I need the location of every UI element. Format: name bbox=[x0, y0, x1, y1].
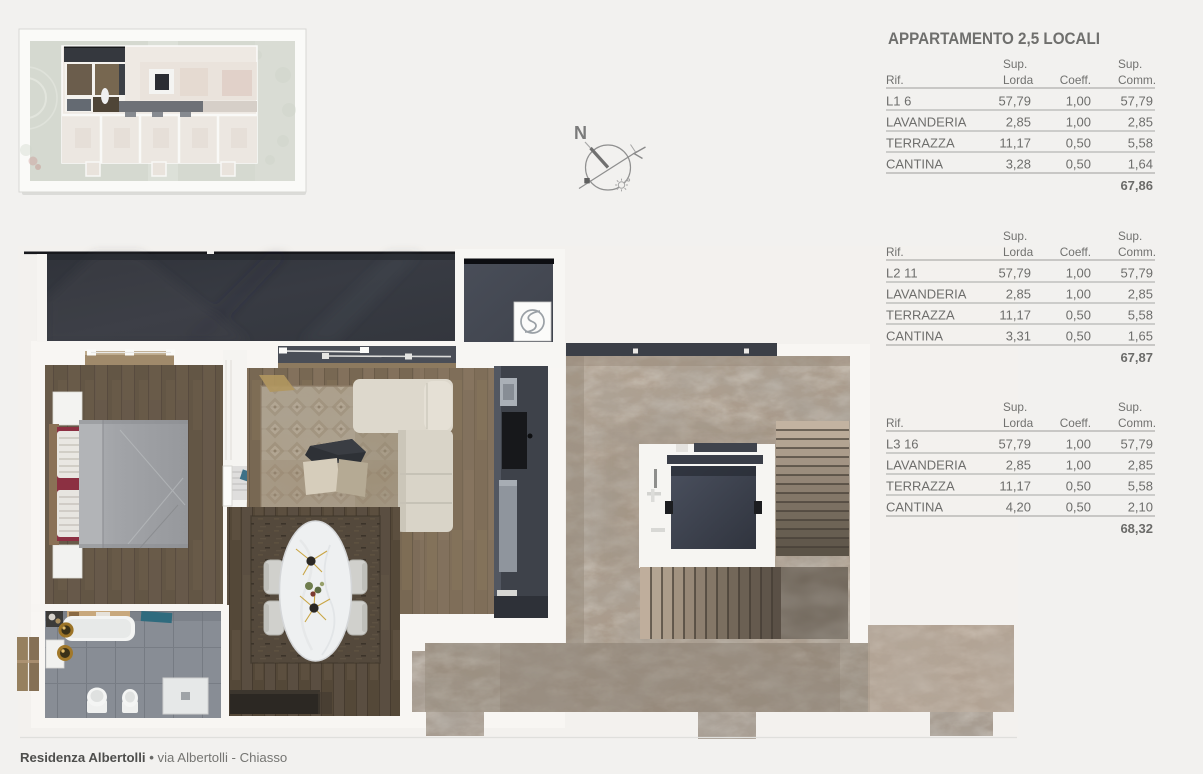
svg-text:1,00: 1,00 bbox=[1066, 287, 1091, 302]
svg-text:L3 16: L3 16 bbox=[886, 437, 919, 452]
svg-text:57,79: 57,79 bbox=[998, 266, 1031, 281]
svg-text:Comm.: Comm. bbox=[1118, 73, 1156, 87]
svg-text:Sup.: Sup. bbox=[1118, 400, 1142, 414]
svg-text:L2 11: L2 11 bbox=[886, 266, 918, 281]
svg-text:1,00: 1,00 bbox=[1066, 266, 1091, 281]
svg-text:Lorda: Lorda bbox=[1003, 245, 1034, 259]
svg-text:LAVANDERIA: LAVANDERIA bbox=[886, 115, 967, 130]
svg-text:67,87: 67,87 bbox=[1120, 350, 1153, 365]
svg-text:1,65: 1,65 bbox=[1128, 329, 1153, 344]
svg-text:Rif.: Rif. bbox=[886, 416, 904, 430]
svg-text:Sup.: Sup. bbox=[1118, 57, 1142, 71]
svg-text:67,86: 67,86 bbox=[1120, 178, 1153, 193]
svg-text:0,50: 0,50 bbox=[1066, 308, 1091, 323]
svg-text:Coeff.: Coeff. bbox=[1060, 73, 1091, 87]
svg-text:57,79: 57,79 bbox=[1120, 94, 1153, 109]
svg-text:2,85: 2,85 bbox=[1006, 115, 1031, 130]
svg-text:Rif.: Rif. bbox=[886, 73, 904, 87]
svg-text:5,58: 5,58 bbox=[1128, 308, 1153, 323]
svg-text:Sup.: Sup. bbox=[1003, 400, 1027, 414]
svg-text:3,31: 3,31 bbox=[1006, 329, 1031, 344]
svg-text:Comm.: Comm. bbox=[1118, 245, 1156, 259]
svg-text:68,32: 68,32 bbox=[1120, 521, 1153, 536]
svg-text:0,50: 0,50 bbox=[1066, 136, 1091, 151]
svg-text:57,79: 57,79 bbox=[998, 437, 1031, 452]
svg-text:1,64: 1,64 bbox=[1128, 157, 1153, 172]
svg-text:1,00: 1,00 bbox=[1066, 437, 1091, 452]
svg-text:CANTINA: CANTINA bbox=[886, 329, 943, 344]
svg-text:1,00: 1,00 bbox=[1066, 94, 1091, 109]
svg-text:LAVANDERIA: LAVANDERIA bbox=[886, 287, 967, 302]
svg-text:11,17: 11,17 bbox=[999, 479, 1031, 494]
svg-text:0,50: 0,50 bbox=[1066, 157, 1091, 172]
svg-text:3,28: 3,28 bbox=[1006, 157, 1031, 172]
svg-text:CANTINA: CANTINA bbox=[886, 500, 943, 515]
svg-text:TERRAZZA: TERRAZZA bbox=[886, 479, 955, 494]
svg-text:4,20: 4,20 bbox=[1006, 500, 1031, 515]
svg-text:Lorda: Lorda bbox=[1003, 73, 1034, 87]
svg-text:57,79: 57,79 bbox=[1120, 266, 1153, 281]
svg-text:APPARTAMENTO 2,5 LOCALI: APPARTAMENTO 2,5 LOCALI bbox=[888, 30, 1100, 48]
svg-text:N: N bbox=[574, 123, 587, 143]
svg-text:1,00: 1,00 bbox=[1066, 458, 1091, 473]
svg-text:2,10: 2,10 bbox=[1128, 500, 1153, 515]
svg-text:0,50: 0,50 bbox=[1066, 329, 1091, 344]
svg-text:0,50: 0,50 bbox=[1066, 500, 1091, 515]
svg-text:L1 6: L1 6 bbox=[886, 94, 911, 109]
svg-text:2,85: 2,85 bbox=[1128, 115, 1153, 130]
svg-text:Sup.: Sup. bbox=[1003, 57, 1027, 71]
svg-text:11,17: 11,17 bbox=[999, 308, 1031, 323]
svg-text:2,85: 2,85 bbox=[1006, 458, 1031, 473]
svg-text:Sup.: Sup. bbox=[1118, 229, 1142, 243]
svg-text:5,58: 5,58 bbox=[1128, 136, 1153, 151]
svg-text:2,85: 2,85 bbox=[1006, 287, 1031, 302]
svg-text:5,58: 5,58 bbox=[1128, 479, 1153, 494]
svg-text:11,17: 11,17 bbox=[999, 136, 1031, 151]
svg-text:CANTINA: CANTINA bbox=[886, 157, 943, 172]
svg-text:LAVANDERIA: LAVANDERIA bbox=[886, 458, 967, 473]
svg-text:1,00: 1,00 bbox=[1066, 115, 1091, 130]
svg-text:Sup.: Sup. bbox=[1003, 229, 1027, 243]
svg-text:57,79: 57,79 bbox=[998, 94, 1031, 109]
svg-text:TERRAZZA: TERRAZZA bbox=[886, 136, 955, 151]
svg-text:2,85: 2,85 bbox=[1128, 458, 1153, 473]
svg-text:Coeff.: Coeff. bbox=[1060, 245, 1091, 259]
svg-text:Comm.: Comm. bbox=[1118, 416, 1156, 430]
svg-text:Coeff.: Coeff. bbox=[1060, 416, 1091, 430]
svg-text:0,50: 0,50 bbox=[1066, 479, 1091, 494]
svg-text:57,79: 57,79 bbox=[1120, 437, 1153, 452]
svg-text:Lorda: Lorda bbox=[1003, 416, 1034, 430]
svg-text:Rif.: Rif. bbox=[886, 245, 904, 259]
svg-text:Residenza Albertolli • via Alb: Residenza Albertolli • via Albertolli - … bbox=[20, 750, 287, 765]
svg-text:2,85: 2,85 bbox=[1128, 287, 1153, 302]
svg-text:TERRAZZA: TERRAZZA bbox=[886, 308, 955, 323]
